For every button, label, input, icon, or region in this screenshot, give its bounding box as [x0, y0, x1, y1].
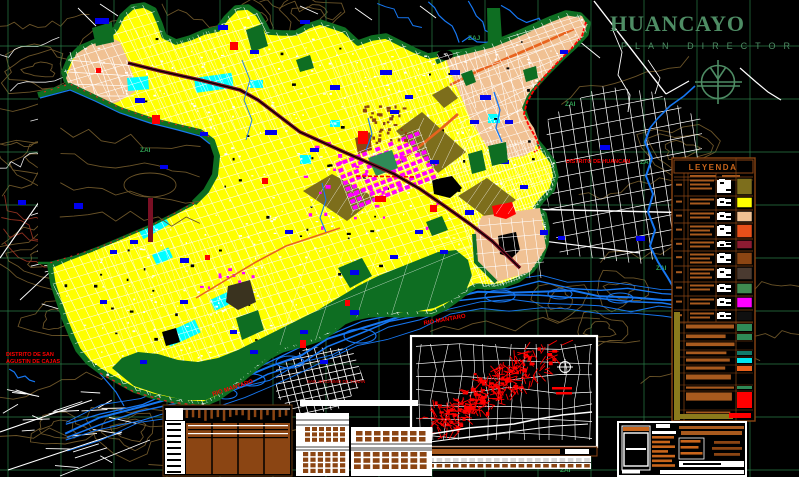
svg-text:DISTRITO DE SAN: DISTRITO DE SAN: [6, 352, 54, 358]
svg-text:LEYENDA: LEYENDA: [689, 163, 738, 172]
svg-text:HUANCAYO: HUANCAYO: [610, 11, 744, 36]
svg-text:AGUSTIN DE CAJAS: AGUSTIN DE CAJAS: [6, 359, 60, 365]
svg-text:SAN JERONIMO DE TUNAN: SAN JERONIMO DE TUNAN: [307, 379, 365, 384]
svg-text:ZAJ: ZAJ: [468, 35, 481, 42]
svg-text:ZAI: ZAI: [565, 101, 576, 108]
svg-text:DISTRITO DE HUANCAN: DISTRITO DE HUANCAN: [566, 159, 630, 165]
svg-text:ZAI: ZAI: [140, 147, 151, 154]
svg-text:PLAN DIRECTOR: PLAN DIRECTOR: [621, 41, 796, 51]
